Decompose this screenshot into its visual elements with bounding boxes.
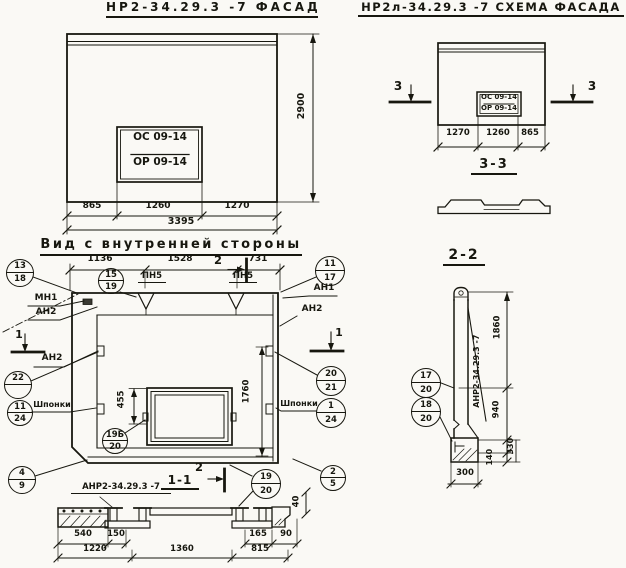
callout-17-20: 1720	[411, 368, 441, 398]
callout-19-20: 1920	[251, 469, 281, 499]
section22-title: 2-2	[443, 248, 485, 266]
inner-dim-731: 731	[234, 255, 282, 264]
facade-dim-total: 3395	[155, 217, 207, 227]
anr-panel-label: АНР2-34.29.3 -7	[71, 483, 171, 494]
drawing-sheet: НР2-34.29.3 -7 ФАСАД НР2л-34.29.3 -7 СХЕ…	[0, 0, 626, 568]
s11-dim-90: 90	[266, 530, 306, 539]
shponki-label-right: Шпонки	[280, 400, 318, 408]
an2-label-topleft: АН2	[29, 308, 63, 317]
callout-20-21: 2021	[316, 366, 346, 396]
scheme-dim-1260: 1260	[478, 129, 518, 138]
callout-13-18: 1318	[6, 259, 34, 287]
pn5-label-left: ПН5	[138, 272, 166, 283]
s11-dim-150: 150	[94, 530, 138, 539]
an2-label-left: АН2	[35, 354, 69, 363]
callout-11-24: 1124	[7, 400, 33, 426]
pn5-label-right: ПН5	[229, 272, 257, 283]
callout-4-9: 49	[8, 466, 36, 494]
inner-view-title: Вид с внутренней стороны	[40, 238, 302, 256]
callout-2-5: 25	[320, 465, 346, 491]
s22-dim-140: 140	[486, 444, 494, 470]
facade-title: НР2-34.29.3 -7 ФАСАД	[106, 1, 318, 18]
an2-label-right: АН2	[297, 305, 327, 314]
callout-11-17: 1117	[315, 256, 345, 286]
facade-dim-height: 2900	[297, 83, 307, 129]
s22-dim-330: 330	[507, 433, 515, 459]
cut1-label-right: 1	[333, 327, 345, 339]
section33-title: 3-3	[471, 158, 517, 175]
s22-dim-940: 940	[493, 395, 502, 423]
s11-dim-1360: 1360	[159, 545, 205, 554]
scheme-title: НР2л-34.29.3 -7 СХЕМА ФАСАДА	[358, 1, 624, 17]
s11-dim-815: 815	[237, 545, 283, 554]
section33-profile	[438, 200, 550, 214]
callout-15-19: 1519	[98, 268, 124, 294]
callout-19b-20: 19Б20	[102, 428, 128, 454]
inner-dim-40: 40	[293, 487, 302, 515]
cut3-label-right: 3	[585, 80, 599, 93]
inner-dim-1760: 1760	[243, 374, 252, 408]
facade-dim-1270: 1270	[212, 202, 262, 211]
callout-22: 22	[4, 371, 32, 399]
inner-dim-1528: 1528	[156, 255, 204, 264]
facade-stamp-line1: ОС 09-14	[126, 132, 194, 143]
callout-1-24: 124	[316, 398, 346, 428]
cut2-label-top: 2	[211, 254, 225, 266]
shponki-label-left: Шпонки	[31, 401, 73, 409]
s11-dim-1220: 1220	[72, 545, 118, 554]
scheme-stamp-line2: ОР 09-14	[478, 105, 520, 112]
scheme-dim-1270: 1270	[438, 129, 478, 138]
facade-dim-1260: 1260	[132, 202, 184, 211]
facade-stamp-line2: ОР 09-14	[126, 157, 194, 168]
callout-18-20: 1820	[411, 397, 441, 427]
s22-dim-300: 300	[449, 469, 481, 478]
an1-label-right: АН1	[309, 284, 339, 293]
cut3-label-left: 3	[391, 80, 405, 93]
cut2-label-bottom: 2	[192, 461, 206, 473]
mn1-label: МН1	[29, 294, 63, 303]
s22-dim-1860: 1860	[494, 311, 503, 343]
facade-dim-865: 865	[67, 202, 117, 211]
scheme-dim-865: 865	[513, 129, 547, 138]
inner-dim-1136: 1136	[76, 255, 124, 264]
cut1-label-left: 1	[13, 329, 25, 341]
inner-dim-455: 455	[118, 383, 127, 415]
scheme-stamp-line1: ОС 09-14	[478, 94, 520, 101]
s22-anr-label: АНР2-34.29.3 -7	[473, 324, 481, 418]
